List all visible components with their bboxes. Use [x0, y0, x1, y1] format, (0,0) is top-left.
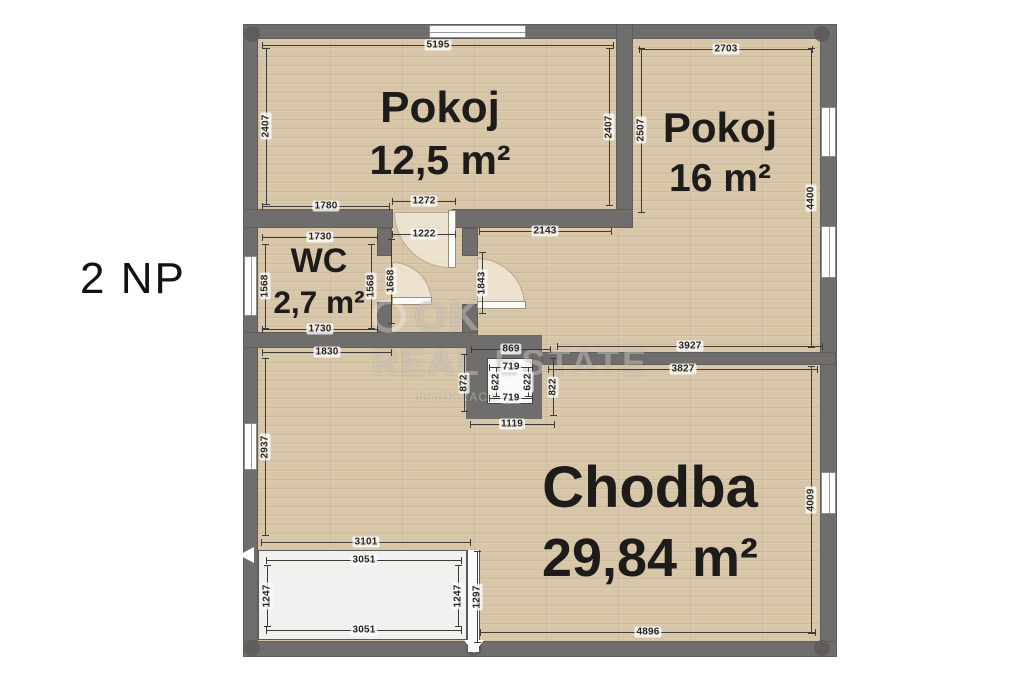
room-name: Pokoj	[330, 80, 550, 135]
floorplan-canvas: 2 NP Pokoj 12,5 m² Pokoj 16	[0, 0, 1024, 682]
wall-hall-north-a	[243, 209, 393, 228]
room-name: Chodba	[492, 452, 808, 525]
room-name: Pokoj	[620, 102, 820, 155]
window-left-chodba	[244, 423, 257, 470]
column	[814, 26, 830, 42]
room-area: 16 m²	[620, 155, 820, 204]
window-left-wc	[244, 256, 257, 316]
room-label-pokoj-1: Pokoj 12,5 m²	[330, 80, 550, 186]
stair-arrow-down-icon	[464, 640, 484, 653]
room-area: 2,7 m²	[258, 283, 380, 323]
staircase-side-strip	[467, 550, 480, 652]
shaft-core	[487, 358, 533, 404]
door-leaf-hall	[448, 210, 456, 268]
room-label-wc: WC 2,7 m²	[258, 240, 380, 322]
room-label-pokoj-2: Pokoj 16 m²	[620, 102, 820, 203]
wall-wc-south	[243, 332, 478, 348]
window-top	[429, 25, 526, 38]
door-leaf-vestibule	[477, 301, 526, 309]
wall-outer-bottom	[243, 641, 837, 657]
entry-arrow-left-icon	[239, 547, 254, 563]
room-area: 29,84 m²	[492, 525, 808, 592]
column	[814, 640, 830, 656]
room-label-chodba: Chodba 29,84 m²	[492, 452, 808, 592]
staircase	[258, 550, 467, 640]
wall-chodba-north	[542, 352, 836, 365]
column	[244, 640, 260, 656]
room-name: WC	[258, 240, 380, 283]
column	[244, 26, 260, 42]
wall-outer-top	[243, 24, 837, 39]
window-right-1	[821, 107, 836, 157]
window-right-chodba	[821, 472, 836, 514]
floor-label: 2 NP	[80, 254, 186, 304]
room-area: 12,5 m²	[330, 135, 550, 186]
window-right-2	[821, 226, 836, 278]
door-leaf-wc	[392, 297, 432, 305]
wall-hall-north-b	[452, 209, 633, 228]
wall-vestibule-top	[462, 228, 478, 256]
